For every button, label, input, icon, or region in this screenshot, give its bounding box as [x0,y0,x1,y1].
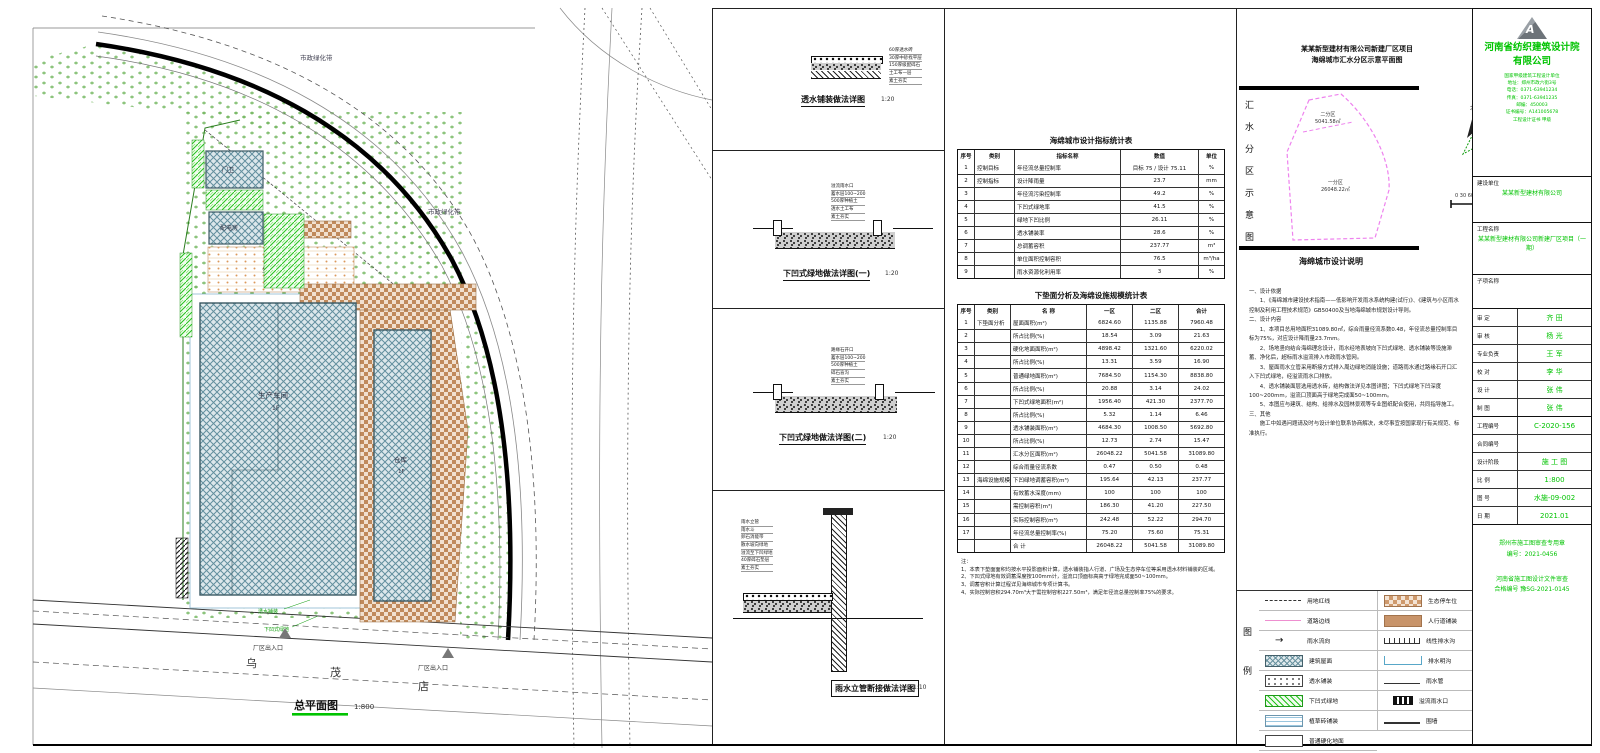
legend-item: 下凹式绿地 [1259,691,1377,711]
text-line: 一、设计依据 [1249,288,1461,297]
cell-total: 294.70 [1178,514,1224,526]
detail-note-line: 40厚碎石垫层 [741,558,773,565]
cell-zone1: 4684.30 [1086,422,1132,434]
detail-note-line: 素土夯实 [831,215,865,222]
cell-group [974,409,1010,421]
table-row: 合 计 26048.22 5041.58 31089.80 [958,539,1224,552]
building-power-label: 配电房 [220,224,238,232]
cell-name: 综合雨量径流系数 [1010,461,1086,473]
cell-group [974,253,1014,265]
cell-total: 6220.02 [1178,343,1224,355]
map-frame-bottom [1239,246,1419,250]
cell-group [974,240,1014,252]
detail-note-line: 30厚中砂找平层 [889,56,922,63]
titleblock-row: 合同编号 [1473,434,1591,452]
legend-label: 排水明沟 [1428,656,1451,665]
cell-group [974,188,1014,200]
cell-zone1: 1956.40 [1086,396,1132,408]
plan-caption: 总平面图 1:800 [292,698,374,716]
cell-zone2: 2.74 [1132,435,1178,447]
sunken-green-patch [206,190,263,210]
cell-name: 年径流总量控制率 [1014,162,1120,174]
table-notes: 注： 1、本表下垫面面积均按水平投影面积计算，透水铺装指人行道、广场及生态停车位… [961,559,1221,598]
cell-name: 年径流污染控制率 [1014,188,1120,200]
cell-name: 下凹绿地调蓄容积(m³) [1010,474,1086,486]
plan-caption-text: 总平面图 [294,698,338,712]
cell-no: 6 [958,383,974,395]
pavement-band [743,600,831,613]
cell-name: 需控制容积(m³) [1010,500,1086,512]
legend-label: 人行道铺装 [1428,616,1457,625]
detail-note-line: 蓄水层100~200 [831,192,865,199]
vertical-char: 例 [1243,664,1252,677]
detail-note-line: 碎石盲沟 [831,371,865,378]
legend-swatch [1384,615,1422,627]
cell-no: 1 [958,317,974,329]
col-header: 数值 [1120,150,1198,162]
titleblock-row-label: 专业负责 [1473,350,1517,358]
table-row: 13 海绵设施规模 下凹绿地调蓄容积(m³) 195.64 42.13 237.… [958,473,1224,486]
detail-note-line: 素土夯实 [831,379,865,386]
pavement-layer-mid [811,63,881,70]
detail-note-line: 路缘石开口 [831,348,865,355]
road-name-char: 乌 [246,656,257,670]
building-warehouse-floor: 1F [398,469,405,475]
cell-total: 31089.80 [1178,540,1224,552]
table-row: 17 年径流总量控制率(%) 75.20 75.60 75.31 [958,526,1224,539]
titleblock-row: 日 期 2021.01 [1473,506,1591,524]
cell-zone1: 18.54 [1086,330,1132,342]
cell-no: 4 [958,356,974,368]
cell-unit: m³/ha [1198,253,1224,265]
cell-group [974,448,1010,460]
cell-name: 有效蓄水深度(mm) [1010,487,1086,499]
legend-label: 溢流雨水口 [1419,696,1448,705]
legend-swatch [1384,683,1420,684]
table2-body: 1 下垫面分析 屋面面积(m²) 6824.60 1135.88 7960.48… [958,317,1224,552]
cell-unit: % [1198,266,1224,278]
vertical-char: 意 [1245,208,1254,221]
titleblock-row: 审 核 杨 光 [1473,326,1591,344]
map-column: 某某新型建材有限公司新建厂区项目 海绵城市汇水分区示意平面图 汇 水 分 区 示… [1237,8,1472,745]
cell-zone2: 3.59 [1132,356,1178,368]
text-line: 2、下凹式绿地有效调蓄深度按100mm计，溢流口顶面标高高于绿地完成面50~10… [961,574,1221,582]
table-row: 5 绿地下凹比例 26.11 % [958,213,1224,226]
zone2-label: 二分区 5041.58㎡ [1315,112,1341,126]
map-title-line2: 海绵城市汇水分区示意平面图 [1257,55,1457,66]
legend-item: 道路边线 [1259,611,1377,631]
cell-no: 2 [958,330,974,342]
legend-label: 用地红线 [1307,596,1330,605]
stamp1-line2: 编号：2021-0456 [1473,550,1591,561]
fence-hatch-strip [176,538,188,598]
cell-total: 75.31 [1178,527,1224,539]
text-line: 4、透水铺装面层选用透水砖，结构做法详见本图详图；下凹式绿地下凹深度100~20… [1249,383,1461,402]
curb [773,384,782,400]
table-row: 4 所占比例(%) 13.31 3.59 16.90 [958,355,1224,368]
cell-unit: % [1198,188,1224,200]
cell-group: 海绵设施规模 [974,474,1010,486]
legend-vertical-header: 图 例 [1243,625,1252,677]
cell-total: 6.46 [1178,409,1224,421]
detail3-scale: 1:20 [883,434,896,441]
titleblock-row-value: 施 工 图 [1517,453,1591,470]
cell-no: 7 [958,396,974,408]
col-header: 类别 [974,305,1010,317]
zone2-name: 二分区 [1315,112,1341,119]
detail-downspout: 雨水立管 雨水斗 卵石消能带 散水坡向绿地 溢流至下凹绿地 40厚碎石垫层 素土… [713,490,944,744]
titleblock-row-value: 水施-09-002 [1517,489,1591,506]
cell-group [974,422,1010,434]
cell-total: 100 [1178,487,1224,499]
cell-zone1: 26048.22 [1086,448,1132,460]
stamp2-line2: 合格编号 豫SG-2021-0145 [1473,585,1591,596]
text-line: 3、屋面雨水立管采用断接方式排入周边绿地消能设施；道路雨水通过路缘石开口汇入下凹… [1249,364,1461,383]
cell-group [974,383,1010,395]
text-line: 传真：0371-63941235 [1473,95,1591,102]
col-header: 序号 [958,305,974,317]
cell-value: 41.5 [1120,201,1198,213]
cell-no: 14 [958,487,974,499]
corner-road-line [602,8,712,180]
legend-label: 植草砖铺装 [1309,716,1338,725]
vertical-char: 分 [1245,142,1254,155]
col-header: 一区 [1086,305,1132,317]
titleblock-row-value: 2021.01 [1517,507,1591,524]
surface-table: 序号 类别 名 称 一区 二区 合计 1 下垫面分析 屋面面积(m²) 6824… [957,304,1225,553]
cell-zone2: 75.60 [1132,527,1178,539]
detail2-notes: 溢流雨水口 蓄水层100~200 500厚种植土 透水土工布 素土夯实 [831,184,865,221]
cell-group [974,500,1010,512]
legend-item: 雨水管 [1378,671,1473,691]
building-warehouse: 仓库 1F [374,330,431,601]
table-row: 6 所占比例(%) 20.88 3.14 24.02 [958,382,1224,395]
table-row: 4 下凹式绿地率 41.5 % [958,200,1224,213]
cell-group [974,369,1010,381]
cell-zone2: 3.09 [1132,330,1178,342]
sunken-green-patch [180,253,192,337]
legend-item: 用地红线 [1259,591,1377,611]
legend-item: 线性排水沟 [1378,631,1473,651]
notes-caption: 海绵城市设计说明 [1299,256,1363,267]
stamp1-line1: 郑州市施工图审查专用章 [1473,539,1591,550]
legend-swatch [1384,595,1422,607]
cell-zone1: 0.47 [1086,461,1132,473]
detail1-scale: 1:20 [881,96,894,103]
cell-zone2: 41.20 [1132,500,1178,512]
cell-no: 15 [958,500,974,512]
project-value: 某某新型建材有限公司新建厂区项目（一期） [1473,233,1591,255]
cell-value: 237.77 [1120,240,1198,252]
cell-group [974,356,1010,368]
wall-cap [823,508,853,515]
company-name-line1: 河南省纺织建筑设计院 [1473,41,1591,55]
detail-note-line: 散水坡向绿地 [741,543,773,550]
cell-name: 实际控制容积(m³) [1010,514,1086,526]
cell-total: 24.02 [1178,383,1224,395]
legend-right-col: 生态停车位 人行道铺装 线性排水沟 排水明沟 雨水管 溢流雨水口 围墙 [1377,591,1473,731]
text-line: 证书编号：A141005678 [1473,109,1591,116]
company-info-lines: 国家甲级建筑工程设计单位 地址：郑州市政六街3号 电话：0371-6394123… [1473,73,1591,124]
detail-note-line: 雨水立管 [741,520,773,527]
sunken-green-patch [264,214,304,288]
catchment-map [1279,92,1409,244]
titleblock-row: 审 定 齐 田 [1473,309,1591,326]
titleblock-row-label: 设 计 [1473,386,1517,394]
vertical-char: 图 [1245,230,1254,243]
building-workshop: 生产车间 1F [200,303,356,595]
cell-zone2: 1135.88 [1132,317,1178,329]
table2-title: 下垫面分析及海绵设施规模统计表 [945,290,1237,301]
table-row: 3 年径流污染控制率 49.2 % [958,187,1224,200]
table1-body: 1 控制目标 年径流总量控制率 目标 75 / 设计 75.11 % 2 控制指… [958,162,1224,278]
subitem-value [1473,285,1591,289]
zone1-area: 26048.22㎡ [1321,187,1350,194]
legend-label: 雨水管 [1426,676,1443,685]
cell-name: 屋面面积(m²) [1010,317,1086,329]
legend-item: 建筑屋面 [1259,651,1377,671]
detail-sunken-green-1: 溢流雨水口 蓄水层100~200 500厚种植土 透水土工布 素土夯实 下凹式绿… [713,150,944,308]
cell-zone1: 12.73 [1086,435,1132,447]
cell-value: 49.2 [1120,188,1198,200]
vertical-char: 区 [1245,164,1254,177]
titleblock-row-value: C-2020-156 [1517,417,1591,434]
titleblock-row-label: 校 对 [1473,368,1517,376]
cell-unit: m³ [1198,240,1224,252]
text-line: 邮编：450003 [1473,102,1591,109]
stamp2-line1: 河南省施工图设计文件审查 [1473,575,1591,586]
text-line: 三、其他 [1249,411,1461,420]
table-row: 8 单位面积控制容积 76.5 m³/ha [958,252,1224,265]
detail4-caption: 雨水立管断接做法详图 [831,680,919,697]
legend-label: 围墙 [1426,716,1438,725]
cell-value: 目标 75 / 设计 75.11 [1120,162,1198,174]
curb [873,220,882,236]
cell-zone1: 100 [1086,487,1132,499]
table-row: 5 普通绿地面积(m²) 7684.50 1154.30 8838.80 [958,368,1224,381]
legend-item: 排水明沟 [1378,651,1473,671]
owner-label: 建设单位 [1473,177,1591,187]
titleblock-row-label: 设计阶段 [1473,458,1517,466]
titleblock-row-label: 审 定 [1473,314,1517,322]
cell-name: 雨水资源化利用率 [1014,266,1120,278]
titleblock-row: 比 例 1:800 [1473,470,1591,488]
cell-name: 总调蓄容积 [1014,240,1120,252]
titleblock-row: 专业负责 王 军 [1473,344,1591,362]
cell-zone2: 100 [1132,487,1178,499]
detail-note-line: 雨水斗 [741,528,773,535]
fields-section: 工程编号 C-2020-156 合同编号 设计阶段 施 工 图 比 例 1:80… [1473,417,1591,525]
cell-no: 10 [958,435,974,447]
cell-zone1: 13.31 [1086,356,1132,368]
detail4-scale: 1:10 [913,684,926,691]
cell-group [974,343,1010,355]
cell-name: 绿地下凹比例 [1014,214,1120,226]
cell-total: 16.90 [1178,356,1224,368]
cell-zone1: 4898.42 [1086,343,1132,355]
cell-no: 3 [958,343,974,355]
legend-swatch [1265,620,1301,621]
ground-line [895,392,935,393]
signature-section: 审 定 齐 田 审 核 杨 光 专业负责 王 军 校 对 李 华 设 计 张 伟… [1473,309,1591,417]
cell-group: 控制指标 [974,175,1014,187]
design-notes: 一、设计依据 1、《海绵城市建设技术指南——低影响开发雨水系统构建(试行)》、《… [1249,288,1461,439]
cell-name: 单位面积控制容积 [1014,253,1120,265]
titleblock-row: 设 计 张 伟 [1473,380,1591,398]
detail-note-line: 60厚透水砖 [889,48,922,55]
table-row: 1 下垫面分析 屋面面积(m²) 6824.60 1135.88 7960.48 [958,317,1224,329]
titleblock-row-value [1517,435,1591,452]
cell-group [974,487,1010,499]
legend-label: 雨水流向 [1307,636,1330,645]
owner-section: 建设单位 某某新型建材有限公司 [1473,177,1591,223]
vertical-char: 图 [1243,625,1252,638]
cell-zone2: 42.13 [1132,474,1178,486]
cell-total: 5692.80 [1178,422,1224,434]
legend-swatch [1265,675,1303,687]
detail-note-line: 500厚种植土 [831,363,865,370]
building-workshop-floor: 1F [272,405,280,412]
titleblock-row-label: 工程编号 [1473,422,1517,430]
titleblock-row-value: 杨 光 [1517,327,1591,344]
legend-swatch [1393,696,1413,705]
detail-sunken-green-2: 路缘石开口 蓄水层100~200 500厚种植土 碎石盲沟 素土夯实 下凹式绿地… [713,308,944,490]
side-road-line [572,8,585,748]
plan-caption-scale: 1:800 [354,703,374,711]
building-workshop-label: 生产车间 [258,390,288,400]
detail-note-line: 溢流雨水口 [831,184,865,191]
legend-item: 溢流雨水口 [1378,691,1473,711]
table1-title: 海绵城市设计指标统计表 [945,135,1237,146]
cell-name: 所占比例(%) [1010,356,1086,368]
detail2-caption: 下凹式绿地做法详图(一) [783,268,870,281]
text-line: 电话：0371-63941234 [1473,87,1591,94]
company-section: A 河南省纺织建筑设计院 有限公司 国家甲级建筑工程设计单位 地址：郑州市政六街… [1473,17,1591,177]
legend-label: 透水铺装 [1309,676,1332,685]
table-row: 16 实际控制容积(m³) 242.48 52.22 294.70 [958,513,1224,526]
company-name-line2: 有限公司 [1473,55,1591,69]
col-header: 单位 [1198,150,1224,162]
zone2-area: 5041.58㎡ [1315,119,1341,126]
cell-no: 9 [958,422,974,434]
detail3-caption: 下凹式绿地做法详图(二) [779,432,866,445]
detail-note-line: 素土夯实 [741,566,773,573]
building-gatehouse-label: 门卫 [222,166,234,174]
vertical-char: 水 [1245,120,1254,133]
greenbelt-label-1: 市政绿化带 [300,53,333,62]
cell-group [974,330,1010,342]
project-section: 工程名称 某某新型建材有限公司新建厂区项目（一期） [1473,223,1591,275]
cell-total: 2377.70 [1178,396,1224,408]
cell-name: 普通绿地面积(m²) [1010,369,1086,381]
detail3-notes: 路缘石开口 蓄水层100~200 500厚种植土 碎石盲沟 素土夯实 [831,348,865,385]
table-notes-title: 注： [961,559,971,565]
zone1-label: 一分区 26048.22㎡ [1321,180,1350,194]
company-name: 河南省纺织建筑设计院 有限公司 [1473,41,1591,70]
cell-group [974,527,1010,539]
map-title-line1: 某某新型建材有限公司新建厂区项目 [1257,44,1457,55]
detail4-notes: 雨水立管 雨水斗 卵石消能带 散水坡向绿地 溢流至下凹绿地 40厚碎石垫层 素土… [741,520,773,572]
cell-value: 76.5 [1120,253,1198,265]
ground-line [893,228,933,229]
titleblock-row-value: 王 军 [1517,345,1591,362]
legend-left-col: 用地红线 道路边线 雨水流向 建筑屋面 透水铺装 下凹式绿地 植草砖铺装 普通硬… [1259,591,1377,751]
pavement-layer-base [811,71,881,79]
table-row: 2 所占比例(%) 18.54 3.09 21.63 [958,329,1224,342]
legend: 图 例 用地红线 道路边线 雨水流向 建筑屋面 透水铺装 下凹式绿地 植草砖铺装… [1237,590,1472,591]
cell-no: 1 [958,162,974,174]
cell-total: 7960.48 [1178,317,1224,329]
cell-no: 11 [958,448,974,460]
legend-swatch [1265,600,1301,601]
col-header: 序号 [958,150,974,162]
col-header: 合计 [1178,305,1224,317]
legend-item: 围墙 [1378,711,1473,731]
cell-name: 下凹式绿地面积(m²) [1010,396,1086,408]
col-header: 名 称 [1010,305,1086,317]
legend-item: 透水铺装 [1259,671,1377,691]
cell-value: 26.11 [1120,214,1198,226]
legend-swatch [1384,638,1420,644]
cell-name: 下凹式绿地率 [1014,201,1120,213]
detail1-notes: 60厚透水砖 30厚中砂找平层 150厚级配碎石 土工布一层 素土夯实 [889,48,922,85]
road-name-char: 店 [418,679,429,693]
cell-name: 所占比例(%) [1010,435,1086,447]
subitem-section: 子项名称 [1473,275,1591,309]
cell-name: 所占比例(%) [1010,409,1086,421]
building-gatehouse: 门卫 [206,151,263,188]
cell-no [958,540,974,552]
titleblock-row: 设计阶段 施 工 图 [1473,452,1591,470]
titleblock-row-label: 合同编号 [1473,440,1517,448]
cell-no: 5 [958,214,974,226]
entrance-2-label: 厂区出入口 [418,664,448,672]
detail-pervious-pavement: 60厚透水砖 30厚中砂找平层 150厚级配碎石 土工布一层 素土夯实 透水铺装… [713,8,944,150]
cell-no: 8 [958,253,974,265]
table-row: 2 控制指标 设计降雨量 23.7 mm [958,174,1224,187]
cell-name: 所占比例(%) [1010,383,1086,395]
cell-unit: mm [1198,175,1224,187]
cell-total: 15.47 [1178,435,1224,447]
table2-header: 序号 类别 名 称 一区 二区 合计 [958,305,1224,317]
titleblock-row: 校 对 李 华 [1473,362,1591,380]
legend-label: 生态停车位 [1428,596,1457,605]
titleblock-row-label: 图 号 [1473,494,1517,502]
table-row: 1 控制目标 年径流总量控制率 目标 75 / 设计 75.11 % [958,162,1224,174]
titleblock-row-label: 审 核 [1473,332,1517,340]
titleblock-row-value: 张 伟 [1517,381,1591,398]
cell-value: 23.7 [1120,175,1198,187]
owner-value: 某某新型建材有限公司 [1473,187,1591,200]
cell-no: 7 [958,240,974,252]
cell-zone2: 421.30 [1132,396,1178,408]
cell-total: 227.50 [1178,500,1224,512]
detail-note-line: 溢流至下凹绿地 [741,551,773,558]
legend-swatch [1265,715,1303,727]
drawing-sheet: 生态停车场 门卫 配电房 生产车间 1F 仓库 1F [0,0,1600,753]
curb [875,384,884,400]
cell-zone1: 242.48 [1086,514,1132,526]
table-row: 11 汇水分区面积(m²) 26048.22 5041.58 31089.80 [958,447,1224,460]
col-header: 类别 [974,150,1014,162]
text-line: 二、设计内容 [1249,316,1461,325]
cell-name: 透水铺装率 [1014,227,1120,239]
vertical-char: 汇 [1245,98,1254,111]
titleblock-row-value: 齐 田 [1517,309,1591,326]
cell-no: 6 [958,227,974,239]
legend-label: 建筑屋面 [1309,656,1332,665]
cell-group [974,514,1010,526]
